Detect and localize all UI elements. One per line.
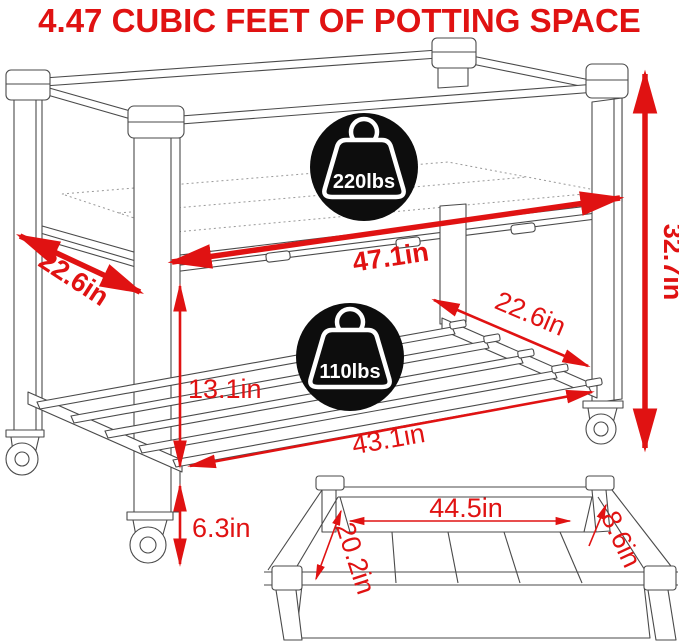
dim-bed-to-shelf-label: 13.1in	[188, 374, 262, 404]
leg-front-right	[586, 64, 628, 403]
dim-overall-height-label: 32.7in	[658, 224, 679, 301]
inset-post-front-left	[272, 566, 302, 640]
floor-divider	[448, 532, 458, 583]
floor-divider	[392, 532, 396, 583]
post-cap	[586, 64, 628, 98]
dim-inset-inner-depth-label: 8.6in	[595, 506, 647, 572]
caster-wheel-front-left	[127, 512, 173, 563]
post-cap	[432, 38, 476, 68]
line-art-canvas: 22.6in 47.1in 32.7in 22.6in 13.1in 43.1i…	[0, 0, 679, 644]
dim-ground-clearance-label: 6.3in	[192, 513, 251, 543]
slat-end-tab	[483, 334, 500, 344]
bed-back-rim	[44, 50, 590, 88]
product-dimension-infographic: 4.47 CUBIC FEET OF POTTING SPACE	[0, 0, 679, 644]
caster-wheel-back-left	[6, 430, 44, 475]
dim-shelf-depth-label: 22.6in	[491, 286, 570, 342]
dim-shelf-width-label: 43.1in	[350, 418, 428, 460]
inset-post-back-left	[316, 476, 344, 532]
dim-overall-height: 32.7in	[645, 74, 679, 448]
bed-capacity-label: 220lbs	[333, 171, 395, 193]
shelf-clip	[511, 223, 536, 235]
weight-badge-bed: 220lbs	[310, 113, 418, 221]
floor-divider	[560, 532, 582, 583]
dim-bed-depth-label: 22.6in	[34, 245, 115, 312]
caster-wheel-front-right	[583, 401, 623, 444]
weight-badge-shelf: 110lbs	[296, 303, 404, 411]
inset-left-wall-outer	[268, 490, 322, 570]
inset-front-wall	[296, 585, 650, 638]
shelf-clip	[266, 251, 291, 263]
dim-ground-clearance: 6.3in	[180, 486, 251, 564]
shelf-capacity-label: 110lbs	[319, 361, 380, 383]
floor-divider	[504, 532, 520, 583]
dim-inset-inner-length-label: 44.5in	[429, 493, 503, 523]
post-cap	[6, 70, 50, 100]
